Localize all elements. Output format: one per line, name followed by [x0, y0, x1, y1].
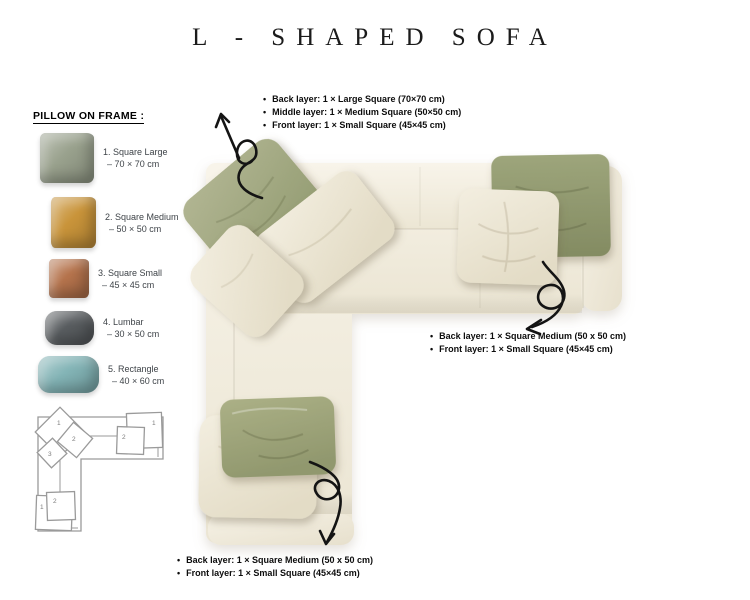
schematic-label: 1 [152, 420, 156, 427]
schematic-label: 2 [53, 498, 57, 505]
annotation-line: Back layer: 1 × Large Square (70×70 cm) [263, 93, 461, 106]
annotation-line: Front layer: 1 × Small Square (45×45 cm) [430, 343, 626, 356]
schematic-label: 2 [72, 436, 76, 443]
annotation-line: Back layer: 1 × Square Medium (50 x 50 c… [177, 554, 373, 567]
schematic-label: 1 [40, 504, 44, 511]
annotation-line: Middle layer: 1 × Medium Square (50×50 c… [263, 106, 461, 119]
sofa-illustration: 1 2 3 1 2 1 2 [0, 0, 750, 600]
pillow-right-cream-small [456, 188, 559, 285]
layout-schematic: 1 2 3 1 2 1 2 [35, 407, 163, 531]
annotation-line: Front layer: 1 × Small Square (45×45 cm) [263, 119, 461, 132]
schematic-label: 2 [122, 434, 126, 441]
schematic-label: 3 [48, 451, 52, 458]
annotation-line: Front layer: 1 × Small Square (45×45 cm) [177, 567, 373, 580]
annotation-bottom: Back layer: 1 × Square Medium (50 x 50 c… [177, 554, 373, 580]
annotation-line: Back layer: 1 × Square Medium (50 x 50 c… [430, 330, 626, 343]
schematic-label: 1 [57, 420, 61, 427]
infographic-canvas: L - SHAPED SOFA PILLOW ON FRAME : 1. Squ… [0, 0, 750, 600]
annotation-corner: Back layer: 1 × Large Square (70×70 cm) … [263, 93, 461, 132]
annotation-right: Back layer: 1 × Square Medium (50 x 50 c… [430, 330, 626, 356]
